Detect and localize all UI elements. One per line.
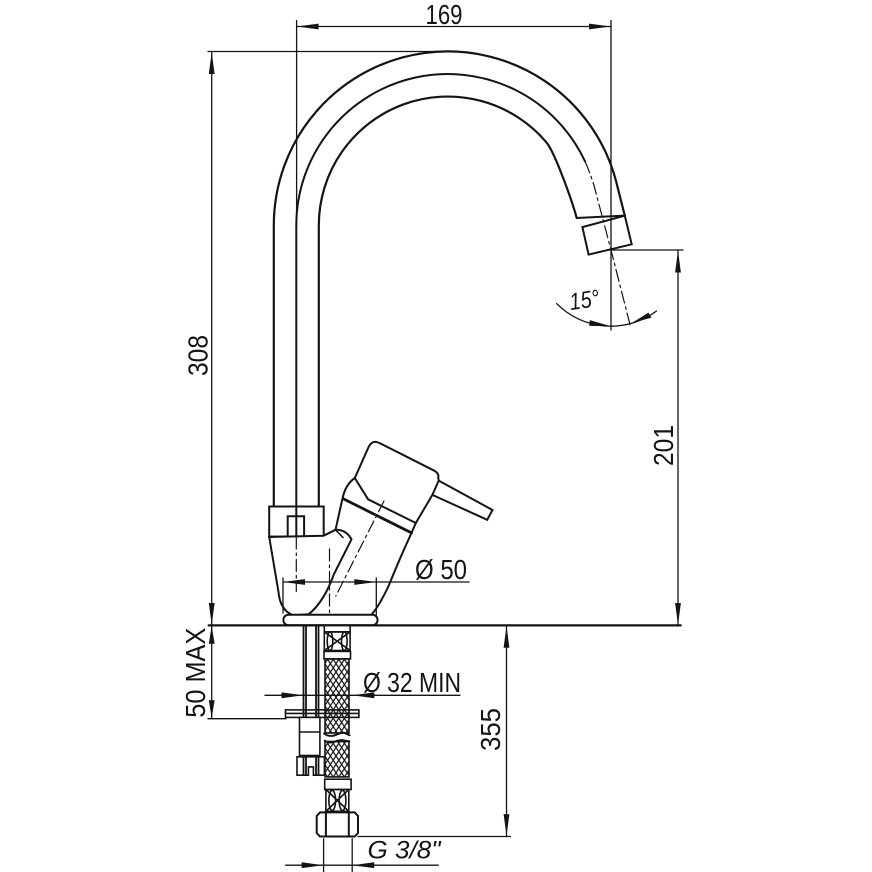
svg-text:169: 169 (426, 0, 463, 30)
svg-text:50 MAX: 50 MAX (180, 628, 211, 718)
svg-text:355: 355 (475, 708, 506, 751)
svg-text:Ø 32 MIN: Ø 32 MIN (363, 667, 461, 698)
svg-text:15°: 15° (568, 285, 602, 316)
svg-text:308: 308 (183, 335, 214, 376)
svg-text:Ø 50: Ø 50 (415, 554, 467, 585)
svg-text:G 3/8": G 3/8" (368, 837, 442, 865)
svg-text:201: 201 (648, 425, 679, 466)
